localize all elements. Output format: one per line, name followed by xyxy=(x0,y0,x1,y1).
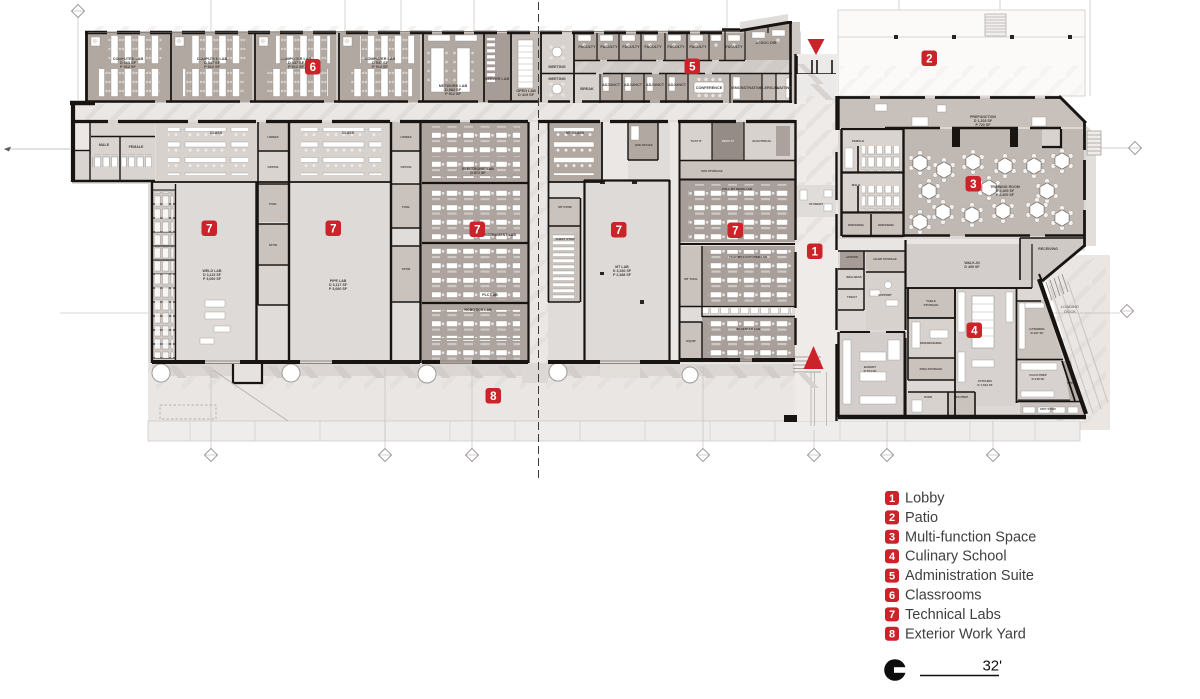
svg-text:DRY STOR: DRY STOR xyxy=(1040,407,1056,411)
svg-text:MEETING: MEETING xyxy=(548,77,565,81)
svg-text:8: 8 xyxy=(889,629,895,641)
svg-text:P 3,060 SF: P 3,060 SF xyxy=(329,287,348,291)
svg-text:PLC LAB: PLC LAB xyxy=(482,293,498,297)
svg-text:1: 1 xyxy=(812,247,819,259)
svg-text:DISH STORAGE: DISH STORAGE xyxy=(920,367,943,371)
svg-text:3D CENTER LAB: 3D CENTER LAB xyxy=(736,327,761,331)
svg-text:Lobby: Lobby xyxy=(905,491,945,507)
svg-text:FACULTY: FACULTY xyxy=(600,45,618,49)
svg-text:MT TOOL: MT TOOL xyxy=(684,277,698,281)
svg-text:FACULTY: FACULTY xyxy=(622,45,640,49)
svg-text:7: 7 xyxy=(206,224,212,236)
svg-text:CLASS: CLASS xyxy=(342,131,355,135)
svg-text:FACULTY: FACULTY xyxy=(644,45,662,49)
svg-text:2: 2 xyxy=(889,512,895,524)
svg-text:6: 6 xyxy=(310,62,316,74)
svg-text:7: 7 xyxy=(474,225,480,237)
svg-text:DRESSING: DRESSING xyxy=(848,223,864,227)
svg-text:DISHWASHING: DISHWASHING xyxy=(920,341,942,345)
svg-text:STORAGE: STORAGE xyxy=(924,303,939,307)
svg-text:PECC IT: PECC IT xyxy=(722,139,734,143)
svg-text:Technical Labs: Technical Labs xyxy=(905,607,1001,623)
svg-text:7: 7 xyxy=(889,609,895,621)
svg-text:VEG PREP: VEG PREP xyxy=(954,395,968,399)
svg-text:Patio: Patio xyxy=(905,510,938,526)
svg-text:OFFICE: OFFICE xyxy=(401,165,412,169)
svg-text:P 912 SF: P 912 SF xyxy=(445,92,461,96)
svg-text:ASSOC DIR: ASSOC DIR xyxy=(755,41,776,45)
svg-text:Multi-function Space: Multi-function Space xyxy=(905,529,1036,545)
svg-text:D 248 SF: D 248 SF xyxy=(1032,377,1045,381)
svg-text:Classrooms: Classrooms xyxy=(905,588,982,604)
svg-text:DOCK: DOCK xyxy=(1064,309,1076,314)
svg-text:6: 6 xyxy=(889,590,895,602)
svg-text:WAITING: WAITING xyxy=(776,86,792,90)
svg-text:CLASS: CLASS xyxy=(210,131,223,135)
svg-text:SUPPORT: SUPPORT xyxy=(878,293,892,297)
svg-text:7: 7 xyxy=(330,224,336,236)
svg-text:FACULTY: FACULTY xyxy=(689,45,707,49)
svg-text:ADJUNCT: ADJUNCT xyxy=(646,83,665,87)
svg-text:D 1,594 SF: D 1,594 SF xyxy=(977,383,992,387)
svg-text:FACULTY: FACULTY xyxy=(725,45,743,49)
svg-text:FEMALE: FEMALE xyxy=(852,139,864,143)
svg-text:TOOL: TOOL xyxy=(402,205,410,209)
svg-text:IEW OFFICE: IEW OFFICE xyxy=(635,143,653,147)
svg-text:P 2,488 SF: P 2,488 SF xyxy=(613,273,632,277)
svg-text:Exterior Work Yard: Exterior Work Yard xyxy=(905,626,1026,642)
svg-text:P 912 SF: P 912 SF xyxy=(120,65,136,69)
svg-text:1: 1 xyxy=(889,493,895,505)
svg-text:TOOL: TOOL xyxy=(269,202,277,206)
svg-text:P 3,060 SF: P 3,060 SF xyxy=(203,277,222,281)
svg-text:MALE: MALE xyxy=(99,143,110,147)
svg-text:D 872 SF: D 872 SF xyxy=(470,171,486,175)
svg-text:ROBOTICS LAB: ROBOTICS LAB xyxy=(464,308,492,312)
svg-text:MT STOR: MT STOR xyxy=(558,205,572,209)
svg-text:TOILET: TOILET xyxy=(847,295,857,299)
svg-text:DEMONSTRATION: DEMONSTRATION xyxy=(729,86,763,90)
svg-text:ADJUNCT: ADJUNCT xyxy=(602,83,621,87)
svg-text:P 912 SF: P 912 SF xyxy=(288,65,304,69)
svg-text:D 419 SF: D 419 SF xyxy=(518,93,535,97)
svg-text:FEMALE: FEMALE xyxy=(129,145,144,149)
svg-text:JANITOR: JANITOR xyxy=(846,255,858,259)
svg-text:MALE: MALE xyxy=(852,183,861,187)
svg-text:8: 8 xyxy=(490,391,497,403)
svg-text:MT CLASS: MT CLASS xyxy=(566,131,585,135)
svg-text:MEETING: MEETING xyxy=(548,65,565,69)
svg-text:STOR: STOR xyxy=(402,267,411,271)
svg-text:SERVER LAB: SERVER LAB xyxy=(485,77,510,81)
svg-text:Administration Suite: Administration Suite xyxy=(905,568,1034,584)
svg-text:5: 5 xyxy=(689,62,696,74)
svg-text:4: 4 xyxy=(971,326,978,338)
svg-text:POLL MT DEMO LAB: POLL MT DEMO LAB xyxy=(722,187,753,191)
svg-text:OFFICE: OFFICE xyxy=(268,165,279,169)
svg-text:TCAT MT COMPUTER LAB: TCAT MT COMPUTER LAB xyxy=(729,255,768,259)
svg-text:CONFERENCE: CONFERENCE xyxy=(696,86,723,90)
svg-text:D 297 SF: D 297 SF xyxy=(1031,331,1044,335)
svg-text:ELECTRICAL: ELECTRICAL xyxy=(753,139,772,143)
svg-text:2: 2 xyxy=(926,54,932,66)
svg-text:ADJUNCT: ADJUNCT xyxy=(624,83,643,87)
svg-text:7: 7 xyxy=(616,225,622,237)
svg-text:INSTRUMENT LAB: INSTRUMENT LAB xyxy=(484,233,516,237)
svg-text:SHEET STOR: SHEET STOR xyxy=(555,237,575,241)
svg-text:UNISEX: UNISEX xyxy=(400,135,411,139)
svg-text:STUDENT: STUDENT xyxy=(809,202,823,206)
svg-text:P 2,400 SF: P 2,400 SF xyxy=(996,193,1015,197)
svg-text:CHAIR STORAGE: CHAIR STORAGE xyxy=(873,257,897,261)
svg-text:ADJUNCT: ADJUNCT xyxy=(668,83,687,87)
svg-text:FACULTY: FACULTY xyxy=(578,45,596,49)
svg-text:Culinary School: Culinary School xyxy=(905,549,1007,565)
svg-text:FACULTY: FACULTY xyxy=(667,45,685,49)
svg-text:STOR: STOR xyxy=(269,243,278,247)
svg-text:P 912 SF: P 912 SF xyxy=(372,65,388,69)
svg-text:RECEIVING: RECEIVING xyxy=(1038,247,1058,251)
svg-text:DRESSING: DRESSING xyxy=(878,223,894,227)
svg-text:IEW STORAGE: IEW STORAGE xyxy=(701,169,722,173)
svg-text:4: 4 xyxy=(889,551,896,563)
svg-text:OVEN: OVEN xyxy=(924,395,932,399)
svg-text:3: 3 xyxy=(970,179,976,191)
svg-text:5: 5 xyxy=(889,570,895,582)
svg-text:D 499 SF: D 499 SF xyxy=(964,265,980,269)
svg-text:7: 7 xyxy=(732,226,738,238)
svg-text:EQUIP: EQUIP xyxy=(686,339,695,343)
svg-text:TCAT IT: TCAT IT xyxy=(690,139,701,143)
svg-text:P 912 SF: P 912 SF xyxy=(204,65,220,69)
svg-text:32': 32' xyxy=(982,658,1002,675)
svg-text:UNISEX: UNISEX xyxy=(267,135,278,139)
svg-text:BREAK: BREAK xyxy=(580,87,594,91)
svg-text:3: 3 xyxy=(889,532,895,544)
svg-text:WELLNESS: WELLNESS xyxy=(846,275,862,279)
svg-text:D 754 SF: D 754 SF xyxy=(864,369,877,373)
svg-text:P 720 SF: P 720 SF xyxy=(976,123,992,127)
